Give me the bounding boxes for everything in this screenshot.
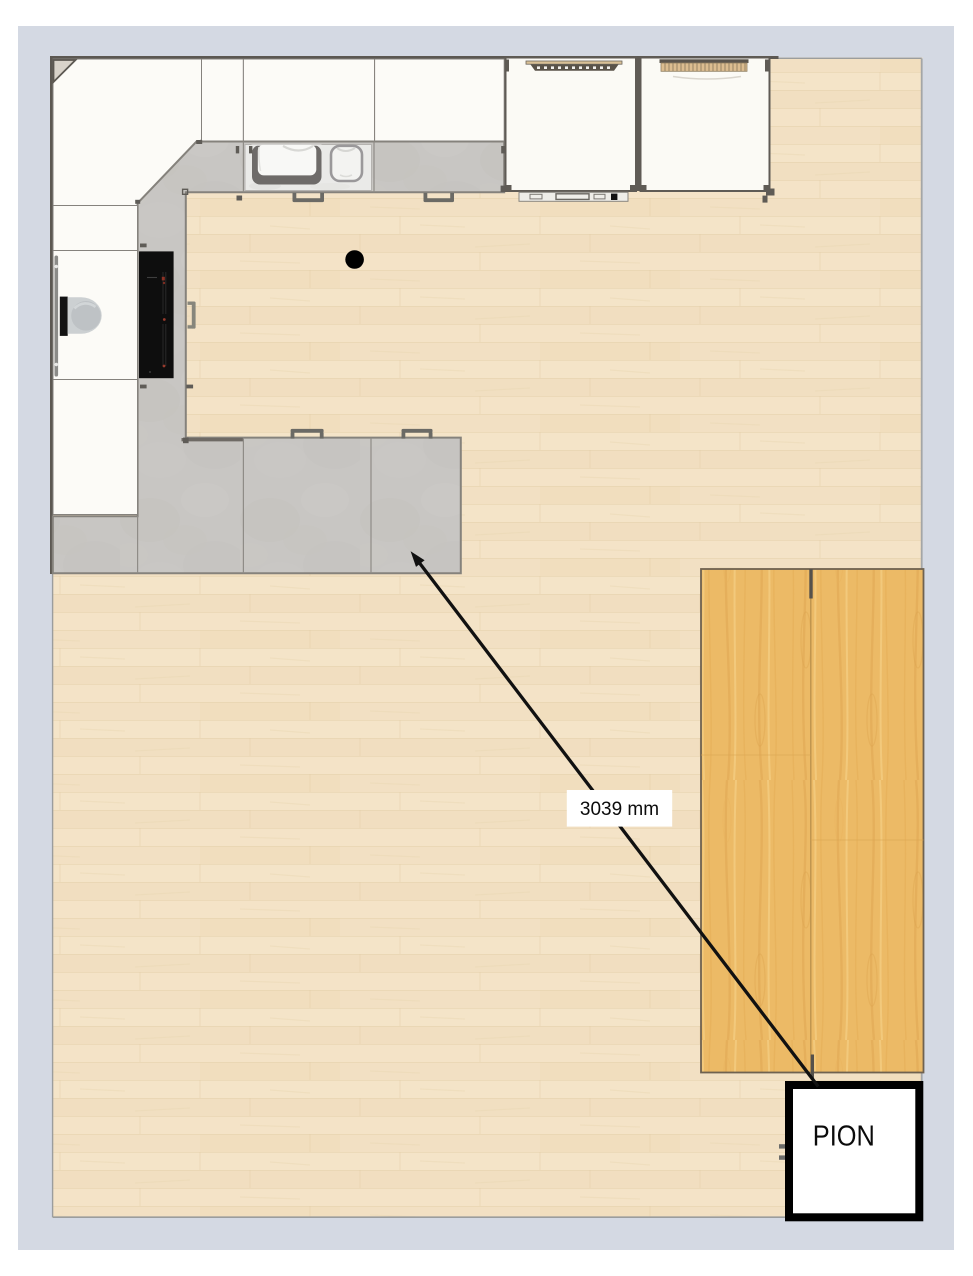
svg-text:PION: PION (813, 1121, 875, 1153)
svg-text:3039 mm: 3039 mm (580, 799, 659, 820)
